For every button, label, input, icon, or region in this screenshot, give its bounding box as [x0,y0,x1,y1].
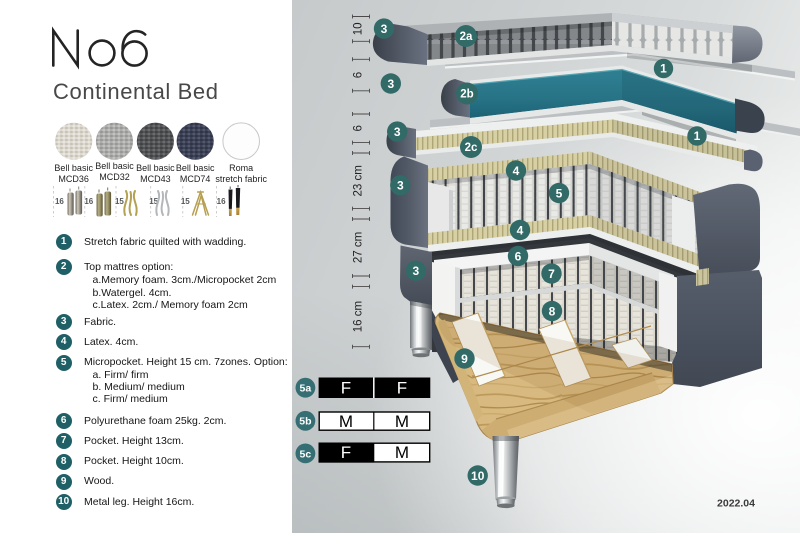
svg-text:7: 7 [548,267,555,281]
svg-text:23 cm: 23 cm [353,165,365,196]
svg-text:2a: 2a [460,31,473,43]
svg-text:2022.04: 2022.04 [717,498,755,510]
svg-text:10: 10 [471,469,485,483]
svg-text:M: M [339,412,353,431]
svg-text:F: F [397,379,407,398]
svg-text:16: 16 [84,197,93,206]
svg-text:M: M [395,443,409,462]
svg-text:9: 9 [461,352,468,366]
svg-text:5a: 5a [300,383,312,395]
svg-text:8: 8 [549,304,556,318]
svg-text:5: 5 [556,186,563,200]
svg-text:2c: 2c [465,142,478,154]
svg-text:16 cm: 16 cm [353,301,365,332]
svg-text:4: 4 [517,223,524,237]
svg-text:15: 15 [181,197,190,206]
svg-text:5c: 5c [300,448,312,460]
svg-text:3: 3 [394,125,401,139]
svg-text:3: 3 [387,77,394,91]
svg-text:5b: 5b [299,416,311,428]
svg-text:3: 3 [412,264,419,278]
svg-text:3: 3 [397,179,404,193]
svg-text:10: 10 [353,23,365,36]
svg-text:F: F [341,443,351,462]
svg-text:1: 1 [694,129,701,143]
svg-text:6: 6 [353,72,365,78]
svg-text:1: 1 [660,62,667,76]
svg-text:F: F [341,379,351,398]
svg-text:16: 16 [55,197,64,206]
svg-text:M: M [395,412,409,431]
svg-text:2b: 2b [460,89,473,101]
svg-text:27 cm: 27 cm [353,232,365,263]
svg-text:6: 6 [515,249,522,263]
svg-text:16: 16 [217,197,226,206]
svg-text:6: 6 [353,125,365,131]
svg-text:4: 4 [513,164,520,178]
svg-text:3: 3 [381,22,388,36]
svg-text:15: 15 [115,197,124,206]
